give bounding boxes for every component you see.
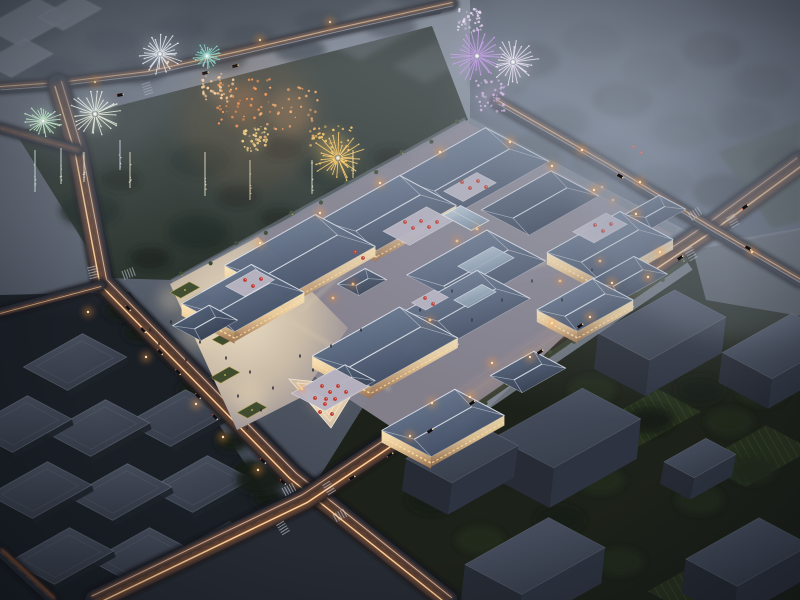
umbrella-highlight [326,398,327,399]
taillight [195,393,197,395]
burst-spark [216,45,218,47]
site-layer [158,119,690,457]
burst-ray [471,32,476,53]
burst-ray [163,50,174,53]
spark [464,28,466,30]
courtyard-tree [676,486,724,514]
burst-spark [38,133,40,135]
red-umbrella [468,186,472,190]
slab-roof-detail [183,529,260,571]
spark [467,15,470,18]
falling-spark [250,188,251,189]
falling-spark [61,176,62,177]
lit-facade [225,266,285,310]
street-lamp-glow [632,210,641,219]
crosswalk-stripe [292,483,296,491]
spark [221,94,224,97]
burst-spark [44,132,46,134]
road-surface [0,552,52,600]
hip-line [173,326,195,329]
road-access-southwest [0,285,101,314]
burst-spark [498,59,500,61]
burst-ray [45,122,55,127]
building-slab [126,390,229,447]
burst-ray [478,59,481,74]
burst-spark [201,49,203,51]
residential-tower-face [402,459,452,515]
burst-ray [96,117,101,127]
burst-spark [139,55,141,57]
burst-ray [339,146,342,155]
burst-ray [159,57,160,68]
firework-spark-cluster [457,8,483,32]
taillight [201,73,203,75]
falling-spark [205,184,206,185]
burst-spark [45,136,47,138]
burst-spark [508,41,510,43]
window-row [538,317,579,339]
spark [255,129,257,131]
burst-ray [71,105,91,112]
lit-facade [312,356,370,399]
roadside-tree [252,488,284,508]
courtyard-lantern-glow [597,258,604,265]
haze-top-right [0,0,800,600]
hip-line [455,389,472,407]
building-slab-side [13,419,74,458]
hedge-light [181,274,183,276]
burst-ray [515,64,528,75]
burst-spark [355,170,357,172]
hip-roof [225,215,376,298]
spark [225,105,227,107]
spark [229,90,232,93]
burst-ray [207,58,208,68]
spark [302,88,304,90]
crosswalk-stripe [122,271,125,279]
pedestrian [246,426,248,429]
residential-tower-face [645,317,726,396]
hip-line [487,230,508,250]
crosswalk-stripe [142,85,151,88]
burst-spark [347,166,349,168]
courtyard-lantern-glow [610,197,617,204]
spark [318,127,320,129]
spark [313,127,316,130]
burst-ray [98,111,120,114]
spark [314,110,317,113]
burst-spark [195,59,197,61]
spark [494,89,497,92]
spark [477,13,478,14]
burst-spark [197,52,199,54]
burst-spark [497,67,499,69]
road-access-west [0,128,78,150]
crosswalk-stripe [686,249,694,254]
eave-edge [547,211,673,252]
headlight [582,323,584,325]
burst-spark [169,43,171,45]
burst-spark [315,164,317,166]
burst-ray [502,42,511,59]
burst-spark [492,50,494,52]
firework-spark-cluster [309,125,353,166]
street-lamp [259,242,261,244]
falling-spark [83,172,84,173]
spark [256,80,259,83]
crosswalk-stripe [325,486,333,491]
burst-spark [26,118,28,120]
street-lamp [593,189,595,191]
hip-line [352,377,375,381]
spark [470,12,473,15]
burst-spark [203,65,205,67]
eave-edge [382,389,505,430]
firework-fountain [60,148,63,184]
burst-ray [75,114,92,116]
tree-cluster [562,22,622,58]
burst-core [205,54,209,58]
tree-cluster [712,102,772,138]
residential-tower-face [682,559,737,600]
spark [332,129,335,132]
courtyard-tree [728,456,776,484]
spark [230,94,232,96]
spark [231,116,234,119]
burst-spark [326,169,328,171]
burst-spark [460,49,462,51]
hip-roof [404,270,530,339]
burst-ray [333,161,337,174]
spark [324,140,327,143]
burst-spark [115,125,117,127]
courtyard-lantern-glow [557,278,564,285]
spark [273,127,275,129]
burst-spark [200,51,202,53]
burst-ray [25,121,40,122]
spark [340,141,342,143]
burst-ray [317,160,335,171]
hip-line [312,356,349,367]
falling-spark [61,168,62,169]
falling-spark [35,183,36,184]
burst-spark [77,97,79,99]
red-umbrella [419,219,423,223]
road-bed [58,84,448,600]
street-lamp-glow [578,146,587,155]
crosswalk-stripe [688,254,696,259]
hedge-bush [429,140,433,144]
burst-ray [162,55,177,63]
street-lamp-glow [164,58,173,67]
park-tree [170,143,230,177]
ridge-line [581,230,639,262]
hip-line [209,305,215,317]
falling-spark [34,176,35,177]
burst-spark [181,60,183,62]
hip-roof [407,230,546,306]
hip-roof [547,211,673,280]
roadside-tree [124,322,156,342]
courtyard-tree [706,408,754,436]
burst-ray [478,42,483,52]
falling-spark [353,170,354,171]
spark [305,95,308,98]
car [116,93,124,97]
spark [311,117,313,119]
lit-facade [320,221,377,263]
burst-ray [452,56,474,57]
burst-spark [452,63,454,65]
amphitheater-step [305,387,343,415]
street-lamp [329,21,331,23]
ridge-line [513,188,567,218]
burst-ray [144,55,157,59]
spark [206,87,209,90]
umbrella-highlight [462,181,463,182]
burst-spark [207,67,209,69]
falling-spark [205,184,206,185]
burst-spark [209,48,211,50]
street-lamp-glow [316,209,325,218]
spark [221,90,223,92]
crosswalk [684,247,697,261]
burst-core [93,112,97,116]
light-trail [0,287,101,314]
umbrella-highlight [261,278,262,279]
spark [218,76,221,79]
burst-ray [95,91,97,110]
park-tree [130,247,170,269]
tree-cluster [622,52,682,88]
spark [226,96,229,99]
spark [251,98,254,101]
umbrella-highlight [338,385,339,386]
burst-spark [513,46,515,48]
burst-ray [37,123,42,130]
park-tree [218,185,258,207]
falling-spark [250,173,251,174]
road-corner-stub [0,550,54,600]
burst-ray [76,116,92,126]
aerial-night-rendering [0,0,800,600]
spark [329,142,331,144]
burst-spark [172,35,174,37]
road-street-northeast [497,100,800,283]
park-grounds [15,26,468,280]
street-lamp-glow [91,78,100,87]
car-body [537,349,544,355]
burst-spark [352,138,354,140]
hip-line [537,310,565,316]
red-umbrella [639,151,643,155]
residential-tower-face [768,340,800,409]
hedge-bush [455,119,459,123]
car-body [577,323,584,329]
burst-ray [516,63,531,66]
hip-line [216,313,235,331]
planter-light [226,336,228,338]
residential-tower-roof [686,518,800,586]
street-lamp-glow [608,279,617,288]
tree-cluster [114,60,166,84]
cluster-glow [314,130,347,163]
spark [330,155,332,157]
road-surface [497,102,800,281]
crosswalk-stripe [730,221,738,226]
burst-ray [80,112,91,114]
spark [493,100,495,102]
burst-ray [503,54,511,60]
street-lamp [551,165,553,167]
burst-ray [208,49,210,54]
umbrella-highlight [325,403,326,404]
eave-edge [182,264,305,303]
street-lamp-glow [84,308,93,317]
umbrella-highlight [322,385,323,386]
street-lamp [469,396,471,398]
burst-spark [173,49,175,51]
lit-facade [600,240,673,291]
crosswalk-stripe [695,209,700,217]
spark [319,162,321,164]
spark [264,93,267,96]
burst-spark [214,61,216,63]
spark [259,136,262,139]
street-lamp-glow [586,313,595,322]
red-umbrella [259,277,263,281]
burst-ray [316,143,335,156]
ridge-line [356,279,368,286]
burst-ray [156,57,160,74]
spark [332,153,333,154]
street-lamp-glow [376,179,385,188]
taillight [175,369,177,371]
courtyard-lantern [301,388,304,391]
burst-ray [338,133,339,155]
headlight [392,452,394,454]
residential-tower-roof [495,388,641,468]
hedge-bush [459,412,463,416]
light-trail [499,104,800,283]
commercial-building [395,128,549,213]
burst-ray [198,52,205,55]
burst-ray [516,59,538,62]
umbrella-highlight [437,221,438,222]
commercial-building [490,351,565,392]
spark [457,25,459,27]
hip-line [639,230,673,240]
burst-ray [500,48,511,60]
burst-ray [500,64,511,71]
tree-cluster [14,18,66,42]
spark [255,132,257,134]
red-umbrella [601,229,605,233]
burst-spark [29,129,31,131]
spark [257,149,259,151]
courtyard-tree [446,406,494,434]
burst-spark [460,72,462,74]
spark [462,20,465,23]
firework-burst [139,34,182,75]
hedge-light [683,260,685,262]
spark [219,105,221,107]
firework-fountain [205,152,207,196]
burst-spark [195,54,197,56]
slab-roof-detail [139,397,216,439]
spark [267,133,269,135]
spark [268,101,269,102]
hip-line [195,329,201,341]
burst-spark [498,56,500,58]
taillight [741,208,743,210]
car-body [117,93,123,97]
burst-ray [331,161,336,170]
burst-ray [480,54,504,56]
residential-tower-roof [406,421,518,483]
spark [222,84,224,86]
street-lamp-glow [142,353,151,362]
crosswalk-stripe [130,268,133,276]
planter-light [196,299,198,301]
burst-spark [165,36,167,38]
commercial-building [312,307,459,399]
courtyard-lantern [456,240,459,243]
burst-ray [149,46,158,52]
headlight [750,249,752,251]
sidewalk-northwest [172,120,466,282]
hip-roof [589,256,668,299]
road-bed [0,285,101,312]
burst-ray [463,45,475,53]
falling-spark [60,165,61,166]
light-trail [97,166,800,600]
spark [256,142,259,145]
hip-line [444,286,465,306]
burst-ray [208,57,214,62]
spark [498,98,500,100]
hip-roof [182,264,305,331]
crosswalk-stripe [141,82,150,85]
crosswalk [282,483,296,496]
headlight [682,255,684,257]
hedge-bush [209,261,213,265]
burst-glow [321,141,355,175]
burst-ray [515,64,526,72]
taillight [576,327,578,329]
courtyard-lantern-glow [454,238,461,245]
burst-ray [209,53,219,56]
intersection-wedge [118,502,445,600]
red-umbrella [323,402,327,406]
park-tree [300,151,360,185]
burst-ray [478,34,485,53]
burst-ray [327,161,336,171]
burst-ray [163,53,176,54]
spark [332,141,334,143]
spark [232,78,235,81]
umbrella-highlight [470,187,471,188]
street-lamp-glow [748,248,757,257]
courtyard-tree [616,346,664,374]
crosswalk-stripe [282,488,286,496]
burst-spark [214,63,216,65]
burst-ray [322,139,336,155]
burst-ray [207,48,208,55]
crosswalk-stripe [132,267,135,275]
burst-spark [208,66,210,68]
spark [210,80,212,82]
